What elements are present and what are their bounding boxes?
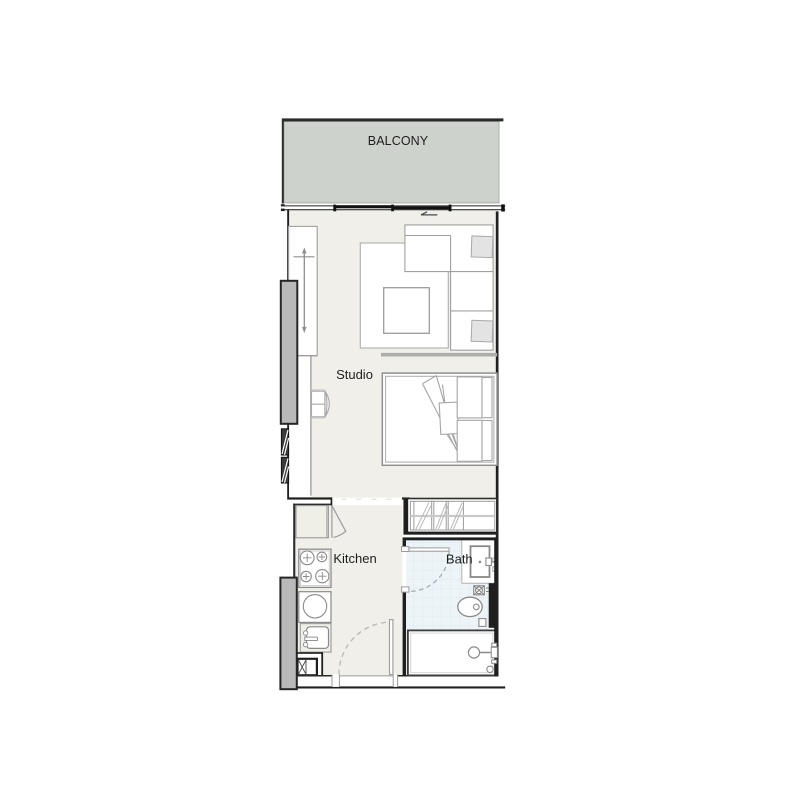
svg-text:Bath: Bath	[446, 552, 473, 567]
svg-text:Kitchen: Kitchen	[333, 551, 376, 566]
svg-text:BALCONY: BALCONY	[368, 134, 429, 148]
svg-text:Studio: Studio	[336, 367, 373, 382]
